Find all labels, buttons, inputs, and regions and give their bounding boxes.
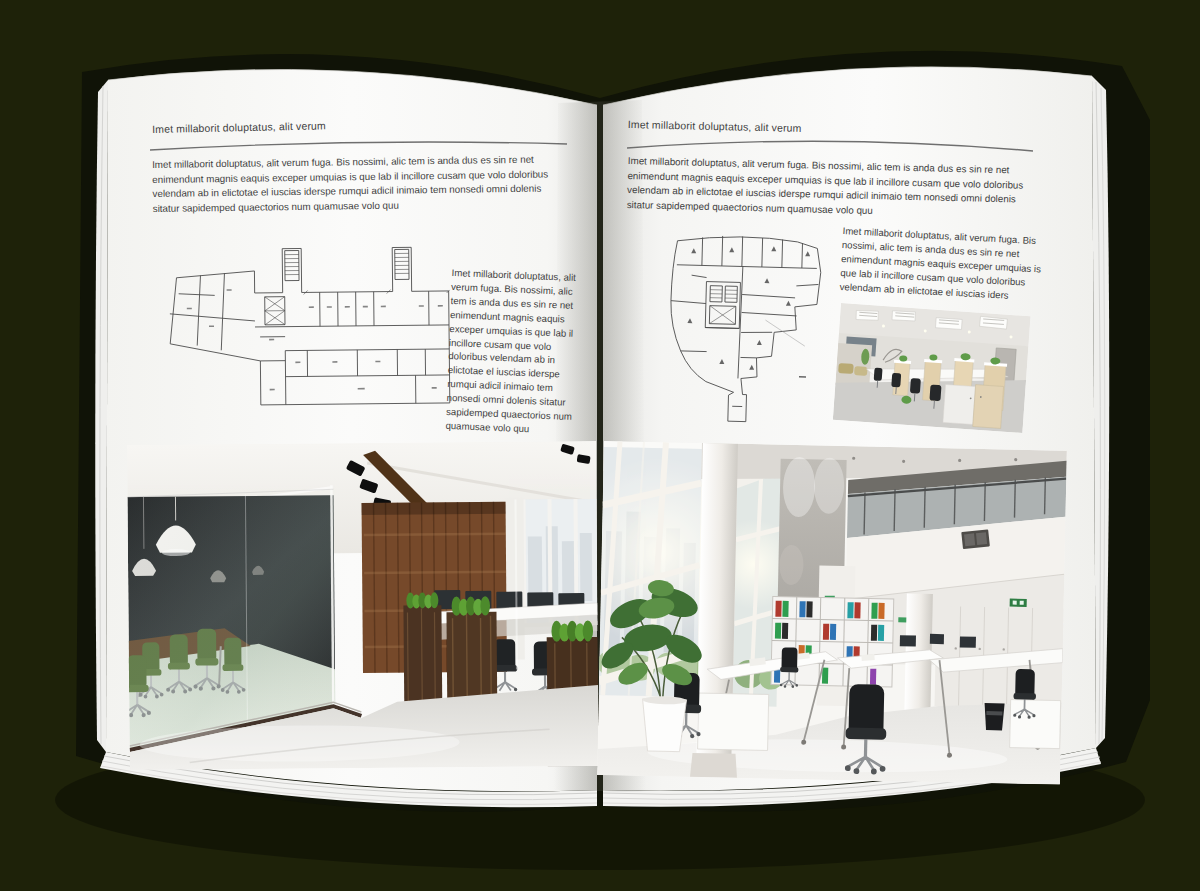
page-stack-left-edge bbox=[95, 80, 108, 752]
left-floorplan-drawing bbox=[156, 227, 463, 422]
right-photo-bright-lobby bbox=[597, 441, 1067, 785]
right-intro-paragraph: Imet millaborit doluptatus, alit verum f… bbox=[627, 154, 1036, 223]
right-header-rule bbox=[627, 134, 1037, 154]
mockup-canvas: Imet millaborit doluptatus, alit verum I… bbox=[0, 0, 1200, 891]
right-floorplan-drawing bbox=[643, 222, 828, 427]
trash-bin-icon bbox=[984, 703, 1005, 730]
right-photo-cubicle-office bbox=[833, 303, 1031, 433]
left-photo-office-dark-wood bbox=[127, 441, 599, 770]
lounge-corner bbox=[835, 343, 872, 387]
left-intro-paragraph: Imet millaborit doluptatus, alit verum f… bbox=[152, 152, 565, 216]
air-vent-icon bbox=[961, 529, 990, 549]
right-caption-block: Imet millaborit doluptatus, alit verum f… bbox=[839, 224, 1042, 304]
left-caption-column: Imet millaborit doluptatus, alit verum f… bbox=[445, 266, 579, 438]
